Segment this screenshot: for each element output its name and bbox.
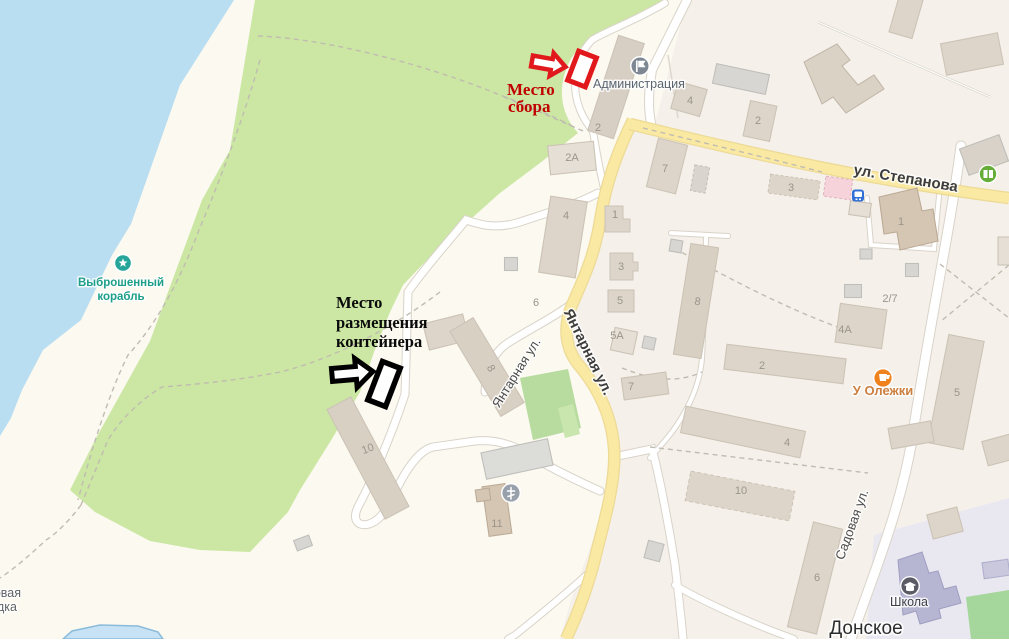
svg-text:4: 4 — [784, 437, 790, 449]
svg-text:2А: 2А — [565, 152, 579, 164]
svg-text:Донское: Донское — [829, 618, 902, 639]
svg-text:2: 2 — [595, 122, 601, 134]
svg-text:4: 4 — [563, 210, 569, 222]
svg-text:сбора: сбора — [508, 97, 551, 116]
svg-text:6: 6 — [814, 572, 820, 584]
svg-text:овая: овая — [0, 586, 21, 600]
svg-text:3: 3 — [788, 182, 794, 194]
svg-text:1: 1 — [612, 209, 618, 221]
svg-text:6: 6 — [533, 297, 539, 309]
svg-text:У Олежки: У Олежки — [853, 383, 914, 398]
svg-text:4: 4 — [687, 95, 693, 107]
svg-text:4А: 4А — [838, 324, 852, 336]
svg-text:2: 2 — [755, 115, 761, 127]
svg-text:2: 2 — [759, 360, 765, 372]
svg-text:7: 7 — [662, 163, 668, 175]
svg-text:2/7: 2/7 — [882, 293, 897, 305]
svg-text:5А: 5А — [610, 330, 624, 342]
svg-text:3: 3 — [618, 261, 624, 273]
svg-text:5: 5 — [617, 295, 623, 307]
svg-text:Место: Место — [336, 293, 382, 312]
svg-text:размещения: размещения — [336, 313, 428, 332]
svg-text:10: 10 — [735, 485, 747, 497]
svg-text:Администрация: Администрация — [593, 77, 685, 91]
svg-text:дка: дка — [0, 600, 17, 614]
svg-text:Школа: Школа — [890, 595, 928, 609]
svg-text:1: 1 — [898, 216, 904, 228]
svg-text:11: 11 — [491, 518, 502, 530]
svg-text:Выброшенный: Выброшенный — [78, 277, 164, 289]
svg-text:контейнера: контейнера — [336, 332, 422, 351]
svg-text:5: 5 — [954, 387, 960, 399]
svg-text:корабль: корабль — [97, 291, 144, 303]
svg-text:7: 7 — [628, 381, 634, 393]
